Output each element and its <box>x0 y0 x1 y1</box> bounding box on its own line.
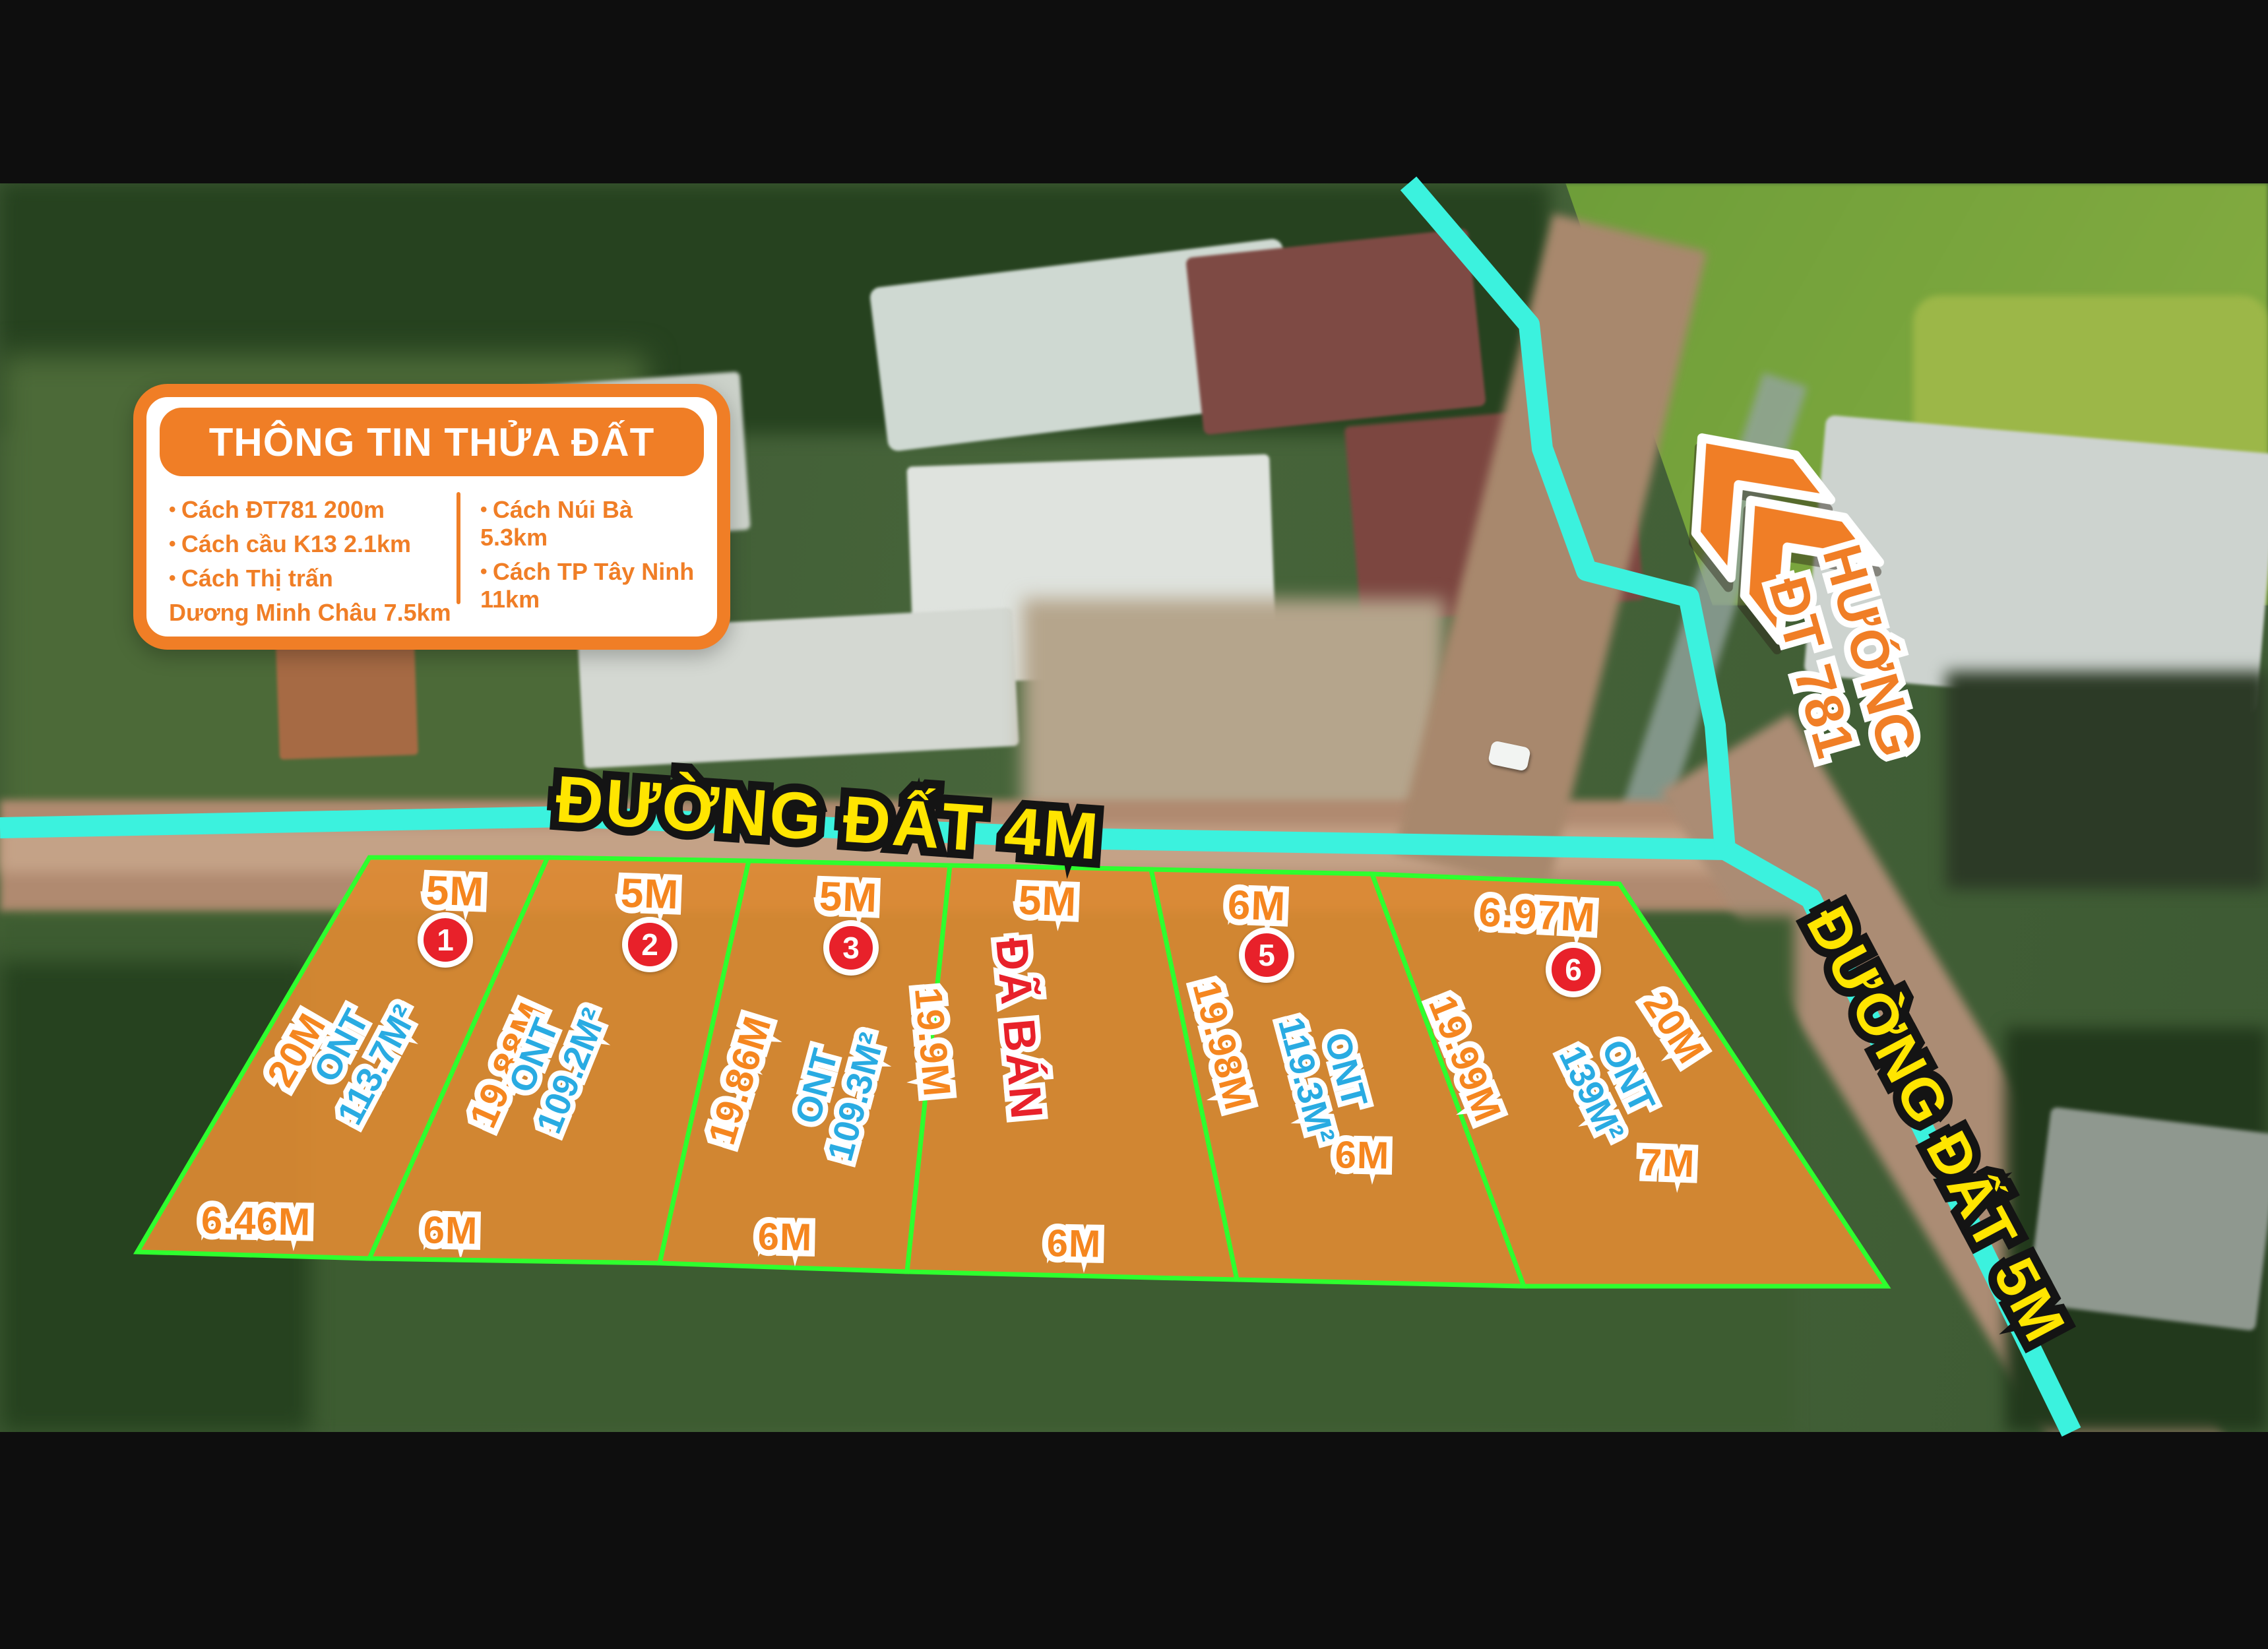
info-bullet: Cách Núi Bà 5.3km <box>480 496 700 551</box>
info-card-header: THÔNG TIN THỬA ĐẤT <box>160 408 704 476</box>
info-card-body: Cách ĐT781 200m Cách cầu K13 2.1km Cách … <box>146 483 717 627</box>
plot4-bottom-dim: 6M <box>1046 1224 1102 1263</box>
plot5-number-badge: 5 <box>1239 927 1294 983</box>
plot5-top-dim: 6M <box>1227 885 1286 927</box>
plot2-number-badge: 2 <box>622 917 677 972</box>
info-bullet-continuation: Dương Minh Châu 7.5km <box>169 599 453 627</box>
plot1-bottom-dim: 6.46M <box>201 1202 311 1242</box>
plot3-side-dim: 19.86M <box>703 1012 778 1149</box>
plot1-number-badge: 1 <box>418 912 473 968</box>
plot2-bottom-dim: 6M <box>423 1211 478 1250</box>
info-card-right-column: Cách Núi Bà 5.3km Cách TP Tây Ninh 11km <box>460 489 700 627</box>
plot3-zoning-area: ONT 109.3M² <box>780 1018 893 1166</box>
labels-layer: ĐƯỜNG ĐẤT 4M ĐƯỜNG ĐẤT 5M HƯỚNG ĐT 781 5… <box>0 0 2268 1649</box>
info-bullet: Cách cầu K13 2.1km <box>169 530 453 558</box>
plot5-side-dim: 19.98M <box>1186 977 1257 1114</box>
plot6-number-badge: 6 <box>1546 942 1601 997</box>
info-bullet: Cách Thị trấn <box>169 565 453 592</box>
plot3-bottom-dim: 6M <box>757 1218 813 1257</box>
plot1-zoning-area: ONT 113.7M² <box>293 980 425 1132</box>
plot3-number: 3 <box>842 930 860 966</box>
plot1-top-dim: 5M <box>425 870 485 913</box>
plot6-bottom-dim: 7M <box>1640 1144 1696 1184</box>
road-label-4m: ĐƯỜNG ĐẤT 4M <box>553 766 1102 869</box>
info-card: THÔNG TIN THỬA ĐẤT Cách ĐT781 200m Cách … <box>133 384 730 650</box>
plot3-number-badge: 3 <box>823 920 879 976</box>
plot6-top-dim: 6.97M <box>1478 892 1596 939</box>
direction-label: HƯỚNG ĐT 781 <box>1752 538 1929 781</box>
info-bullet: Cách ĐT781 200m <box>169 496 453 524</box>
plot4-side-dim: 19.9M <box>908 986 956 1099</box>
plot6-right-dim: 20M <box>1637 985 1711 1071</box>
plot2-top-dim: 5M <box>620 873 679 916</box>
plot5-zoning-area: ONT 119.3M² <box>1270 1003 1382 1148</box>
plot4-top-dim: 5M <box>1018 880 1077 923</box>
plot6-zoning-area: ONT 139M² <box>1551 1022 1669 1148</box>
plot3-top-dim: 5M <box>819 876 878 919</box>
plot1-number: 1 <box>437 922 454 958</box>
info-card-left-column: Cách ĐT781 200m Cách cầu K13 2.1km Cách … <box>169 489 453 627</box>
plot5-bottom-dim: 6M <box>1335 1136 1390 1175</box>
info-bullet: Cách TP Tây Ninh 11km <box>480 558 700 613</box>
flyer-canvas: ĐƯỜNG ĐẤT 4M ĐƯỜNG ĐẤT 5M HƯỚNG ĐT 781 5… <box>0 0 2268 1649</box>
plot6-number: 6 <box>1565 952 1582 987</box>
info-card-title: THÔNG TIN THỬA ĐẤT <box>209 420 654 465</box>
plot4-sold-label: ĐÃ BÁN <box>989 936 1050 1121</box>
road-label-5m: ĐƯỜNG ĐẤT 5M <box>1797 898 2075 1351</box>
plot6-side-dim: 19.99M <box>1422 991 1507 1127</box>
plot2-number: 2 <box>641 927 658 962</box>
plot5-number: 5 <box>1258 937 1275 973</box>
